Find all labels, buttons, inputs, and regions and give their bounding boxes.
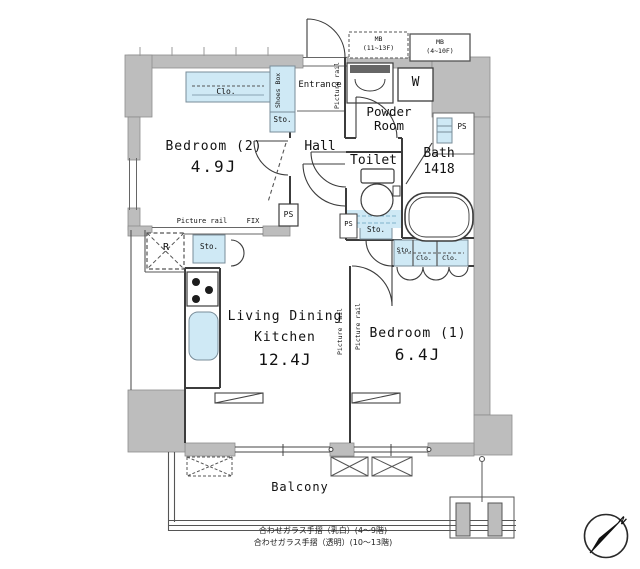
meter-box-lower-line1: MB <box>410 39 470 46</box>
meter-box-upper-line1: MB <box>349 36 408 43</box>
room-label-bedroom2: Bedroom (2) <box>150 140 278 154</box>
room-size-bedroom2: 4.9J <box>150 159 278 176</box>
railing-note-line1: 合わせガラス手摺（乳白）(4〜9階) <box>158 527 488 535</box>
picture-rail-label-entrance: Picture rail <box>334 62 341 110</box>
ps-label-top-right: PS <box>452 123 472 131</box>
closet-label-bedroom2: Clo. <box>196 88 256 96</box>
closet-label-2: Clo. <box>437 255 463 262</box>
toilet-icon <box>361 169 400 216</box>
compass-icon: N <box>585 515 628 558</box>
picture-rail-label-ldk: Picture rail <box>337 303 344 361</box>
picture-rail-label-bedroom2: Picture rail <box>170 218 234 225</box>
closet-label-1: Clo. <box>411 255 437 262</box>
meter-box-upper-line2: (11~13F) <box>349 45 408 52</box>
picture-rail-label-bedroom1: Picture rail <box>355 290 362 364</box>
room-size-bath: 1418 <box>404 163 474 177</box>
room-size-ldk: 12.4J <box>215 352 355 369</box>
room-label-ldk-line1: Living Dining <box>215 310 355 324</box>
room-size-bedroom1: 6.4J <box>360 347 476 364</box>
shoes-box-label: Shoes Box <box>275 69 282 111</box>
room-label-bath: Bath <box>404 147 474 161</box>
storage-label-hall: Sto. <box>360 226 392 234</box>
refrigerator-label: R <box>150 243 182 254</box>
ps-label-toilet: PS <box>340 221 357 228</box>
fix-window-label: FIX <box>240 218 266 225</box>
ps-label-bedroom2: PS <box>279 211 298 219</box>
floor-plan: N Bedroom (2) 4.9J Living Dining Kitchen… <box>0 0 640 569</box>
room-label-toilet: Toilet <box>345 154 402 168</box>
room-label-bedroom1: Bedroom (1) <box>360 327 476 341</box>
storage-label-bedroom1: Sto. <box>394 247 415 254</box>
storage-label-kitchen: Sto. <box>193 243 225 251</box>
vanity-icon <box>347 63 393 103</box>
room-label-powder-line1: Powder <box>348 105 430 118</box>
low-window-symbols <box>215 393 400 403</box>
bathtub-icon <box>405 193 473 241</box>
storage-label-entrance: Sto. <box>270 116 295 124</box>
stove-icon <box>187 272 218 306</box>
room-label-balcony: Balcony <box>240 481 360 494</box>
washer-label: W <box>398 76 433 90</box>
room-label-powder-line2: Room <box>348 119 430 132</box>
room-label-hall: Hall <box>294 140 346 154</box>
meter-box-lower-line2: (4~10F) <box>410 48 470 55</box>
railing-note-line2: 合わせガラス手摺（透明）(10〜13階) <box>158 539 488 547</box>
room-label-ldk-line2: Kitchen <box>215 331 355 345</box>
ac-unit-icons <box>187 457 412 476</box>
